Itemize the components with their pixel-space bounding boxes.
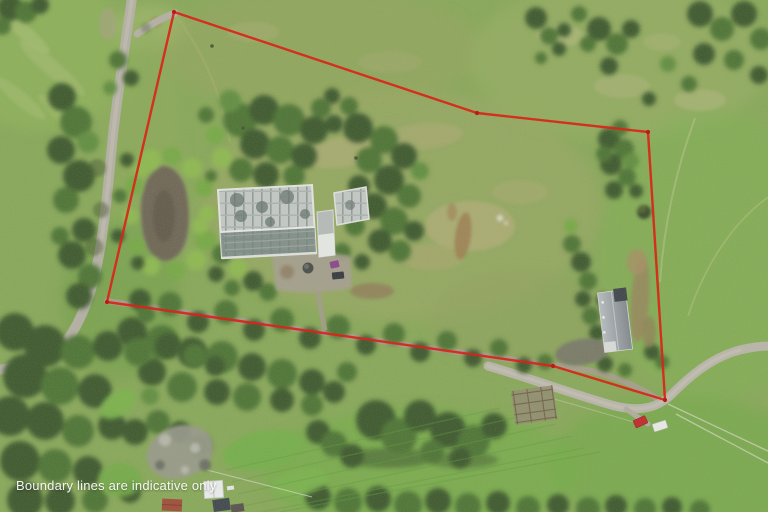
aerial-photo: Boundary lines are indicative only — [0, 0, 768, 512]
aerial-photo-canvas — [0, 0, 768, 512]
photo-grain — [0, 0, 768, 512]
boundary-disclaimer: Boundary lines are indicative only — [16, 478, 216, 493]
